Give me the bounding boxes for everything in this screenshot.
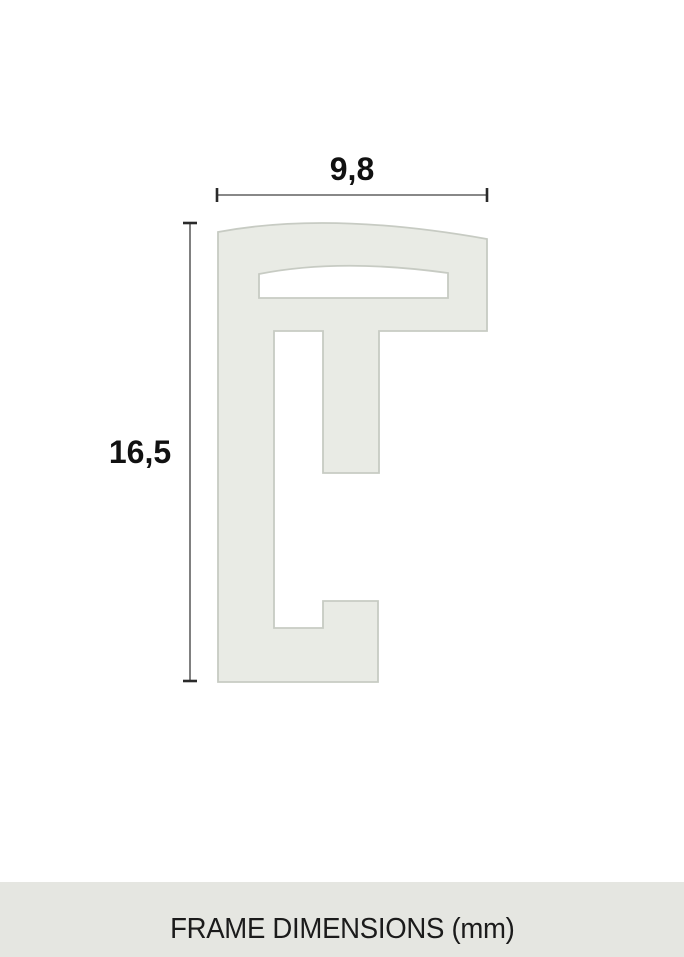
height-dimension-label: 16,5	[109, 436, 171, 468]
profile-shape	[218, 223, 487, 682]
height-dimension-line	[183, 223, 197, 681]
width-dimension-label: 9,8	[330, 153, 374, 185]
frame-dimension-figure: 9,8 16,5 FRAME DIMENSIONS (mm)	[0, 0, 684, 957]
profile-diagram-svg	[0, 0, 684, 957]
caption-text: FRAME DIMENSIONS (mm)	[170, 913, 515, 946]
caption-bar: FRAME DIMENSIONS (mm)	[0, 882, 684, 957]
width-dimension-line	[217, 188, 487, 202]
